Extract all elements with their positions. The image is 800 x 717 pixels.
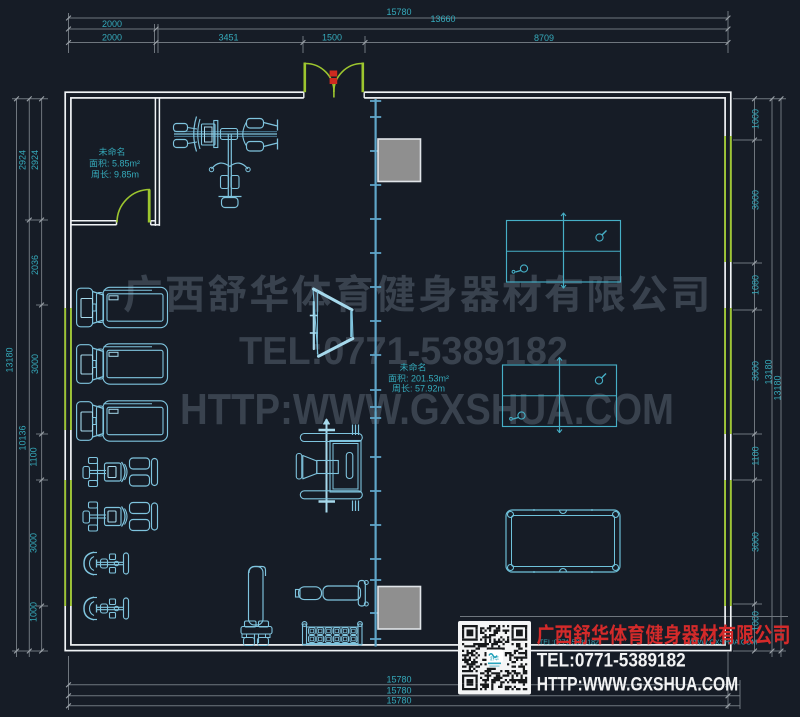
svg-text:: 5.85m²: : 5.85m²: [107, 159, 140, 169]
svg-text:2036: 2036: [30, 255, 40, 275]
svg-text:1000: 1000: [29, 602, 39, 622]
svg-text:1500: 1500: [322, 33, 342, 43]
svg-text:2000: 2000: [102, 19, 122, 29]
svg-text:3000: 3000: [751, 532, 761, 552]
svg-text:1100: 1100: [751, 446, 761, 465]
svg-text:2924: 2924: [30, 150, 40, 170]
svg-text:HTTP:WWW.GXSHUA.COM: HTTP:WWW.GXSHUA.COM: [537, 674, 739, 696]
svg-text:1000: 1000: [751, 109, 761, 129]
svg-text:3000: 3000: [751, 361, 761, 381]
svg-text:13180: 13180: [5, 347, 15, 372]
svg-text:3000: 3000: [30, 354, 40, 374]
svg-text:: 57.92m: : 57.92m: [410, 384, 445, 394]
svg-text:TEL:0771-5389182: TEL:0771-5389182: [537, 650, 686, 672]
svg-text:15780: 15780: [386, 7, 411, 17]
svg-text:: 9.85m: : 9.85m: [109, 170, 139, 180]
svg-text:15780: 15780: [386, 696, 411, 706]
svg-text:舒华: 舒华: [490, 655, 499, 662]
svg-text:3000: 3000: [29, 533, 39, 553]
svg-text:8709: 8709: [534, 33, 554, 43]
svg-text:2924: 2924: [18, 150, 28, 170]
svg-text:13180: 13180: [773, 375, 783, 400]
svg-text:: 201.53m²: : 201.53m²: [406, 374, 449, 384]
svg-text:1100: 1100: [29, 447, 39, 466]
svg-text:1080: 1080: [751, 275, 761, 295]
svg-text:2000: 2000: [102, 33, 122, 43]
svg-text:3451: 3451: [218, 33, 238, 43]
svg-text:15780: 15780: [386, 686, 411, 696]
svg-text:TEL:0771-5389182: TEL:0771-5389182: [239, 330, 568, 373]
svg-text:15780: 15780: [386, 675, 411, 685]
svg-text:3000: 3000: [751, 190, 761, 210]
svg-text:13660: 13660: [430, 14, 455, 24]
svg-text:10136: 10136: [18, 425, 28, 450]
